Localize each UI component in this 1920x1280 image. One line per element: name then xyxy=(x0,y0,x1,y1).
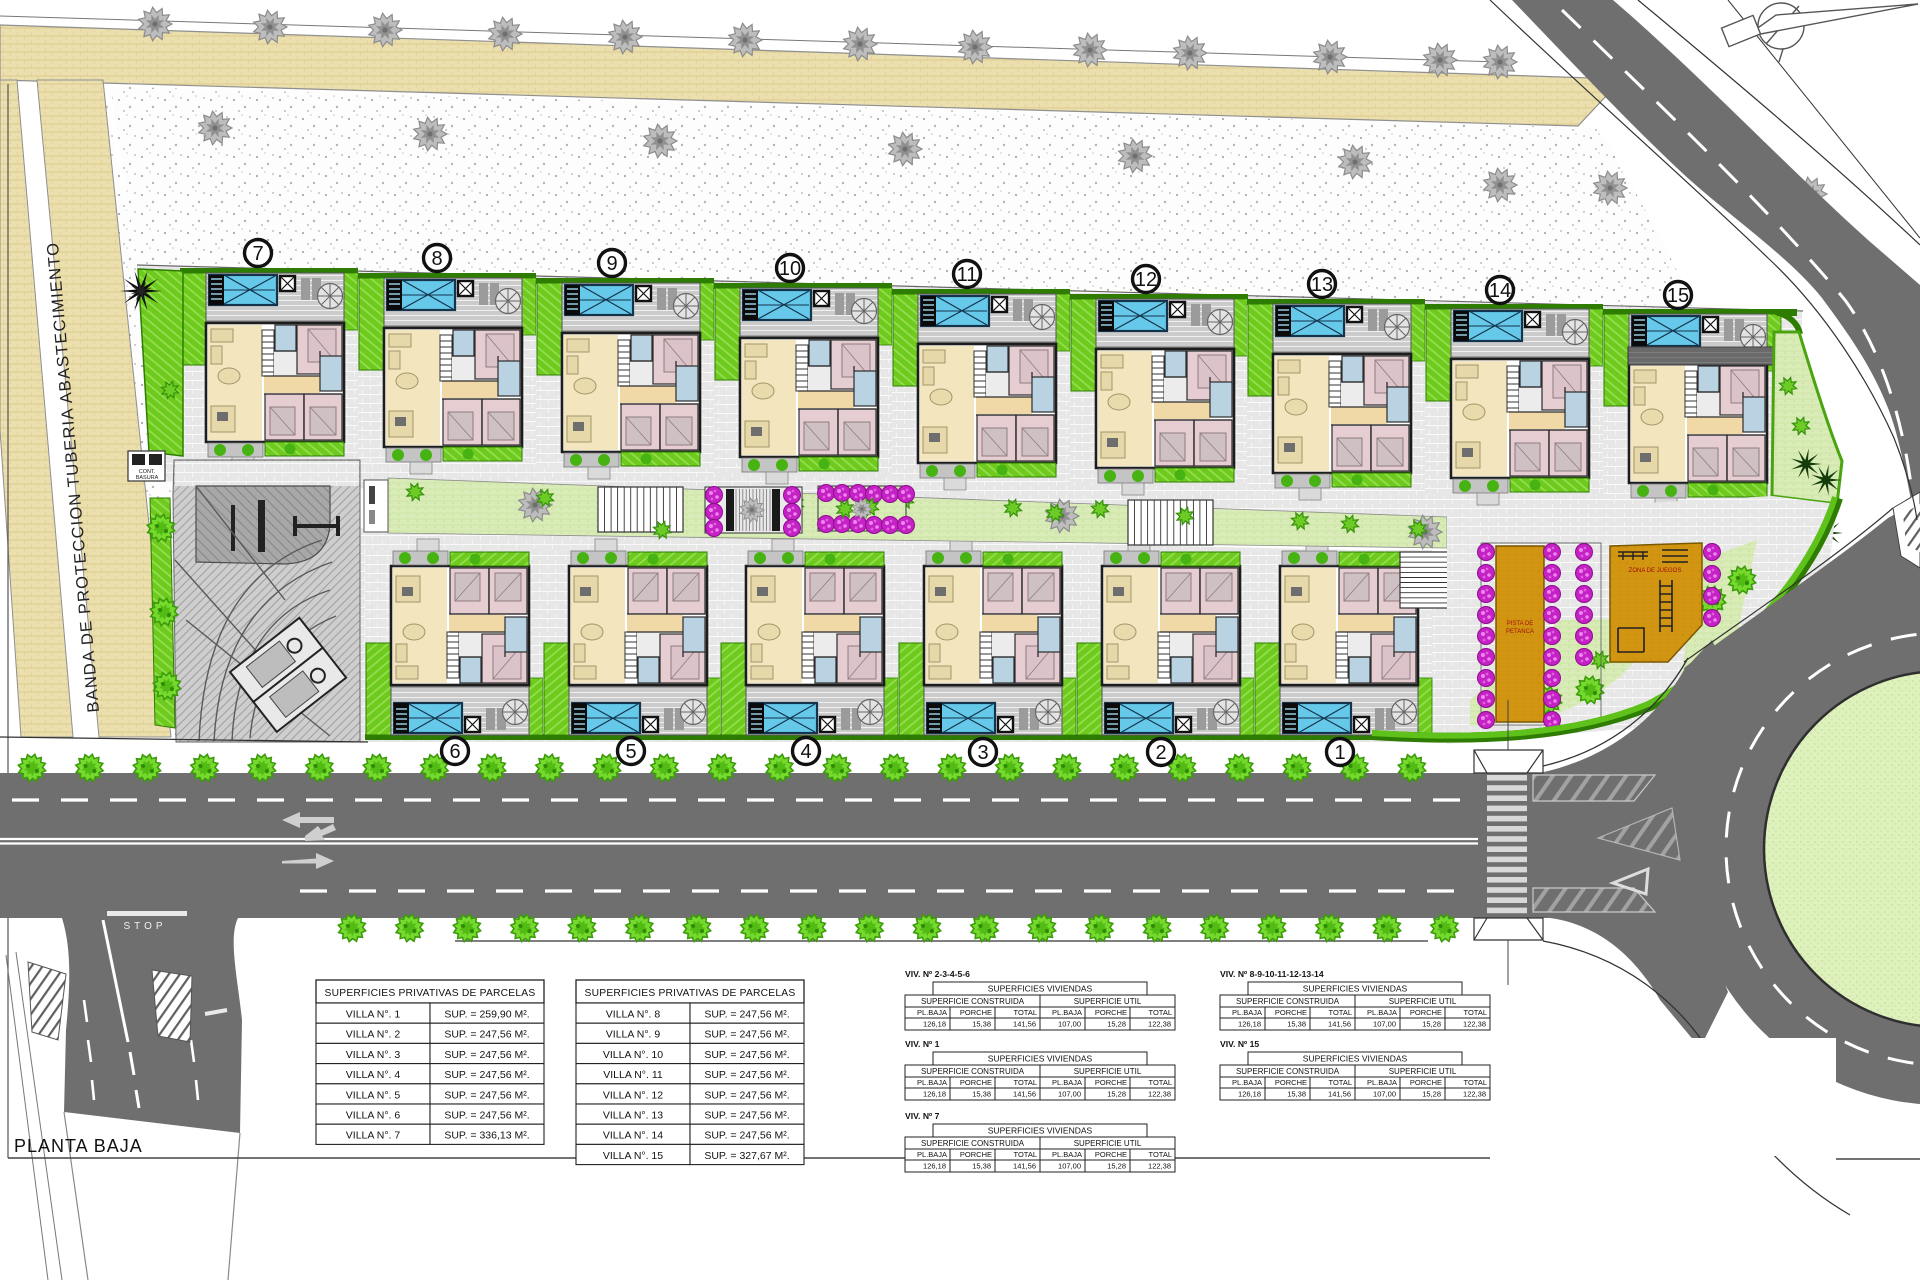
svg-text:141,56: 141,56 xyxy=(1328,1090,1351,1099)
svg-text:SUPERFICIES VIVIENDAS: SUPERFICIES VIVIENDAS xyxy=(988,984,1093,994)
svg-text:SUP. = 247,56 M².: SUP. = 247,56 M². xyxy=(704,1049,789,1061)
svg-text:SUP. = 247,56 M².: SUP. = 247,56 M². xyxy=(704,1089,789,1101)
svg-text:SUPERFICIE CONSTRUIDA: SUPERFICIE CONSTRUIDA xyxy=(1236,1067,1340,1076)
svg-text:15,38: 15,38 xyxy=(1287,1020,1306,1029)
svg-text:SUP. = 247,56 M².: SUP. = 247,56 M². xyxy=(704,1069,789,1081)
svg-text:122,38: 122,38 xyxy=(1148,1162,1171,1171)
svg-text:SUPERFICIE UTIL: SUPERFICIE UTIL xyxy=(1074,1139,1142,1148)
svg-text:SUP. = 247,56 M².: SUP. = 247,56 M². xyxy=(444,1029,529,1041)
svg-text:PORCHE: PORCHE xyxy=(1095,1150,1127,1159)
svg-text:5: 5 xyxy=(625,741,636,763)
svg-text:107,00: 107,00 xyxy=(1373,1020,1396,1029)
svg-text:VIV. Nº 1: VIV. Nº 1 xyxy=(905,1039,940,1049)
svg-text:122,38: 122,38 xyxy=(1463,1090,1486,1099)
svg-text:TOTAL: TOTAL xyxy=(1149,1008,1172,1017)
svg-text:10: 10 xyxy=(779,258,801,280)
svg-text:PL.BAJA: PL.BAJA xyxy=(1052,1150,1082,1159)
svg-text:PORCHE: PORCHE xyxy=(1275,1008,1307,1017)
svg-text:141,56: 141,56 xyxy=(1013,1162,1036,1171)
svg-text:VILLA N°. 5: VILLA N°. 5 xyxy=(346,1089,401,1101)
svg-text:SUPERFICIES PRIVATIVAS DE PARC: SUPERFICIES PRIVATIVAS DE PARCELAS xyxy=(325,988,536,999)
svg-text:PORCHE: PORCHE xyxy=(1095,1008,1127,1017)
svg-text:VILLA N°. 10: VILLA N°. 10 xyxy=(603,1049,663,1061)
svg-text:TOTAL: TOTAL xyxy=(1149,1150,1172,1159)
svg-text:VILLA N°. 14: VILLA N°. 14 xyxy=(603,1130,663,1142)
svg-text:6: 6 xyxy=(449,741,460,763)
svg-text:STOP: STOP xyxy=(123,921,166,932)
svg-text:VILLA N°. 7: VILLA N°. 7 xyxy=(346,1130,401,1142)
svg-text:SUPERFICIES VIVIENDAS: SUPERFICIES VIVIENDAS xyxy=(988,1126,1093,1136)
svg-text:107,00: 107,00 xyxy=(1058,1162,1081,1171)
svg-text:SUP. = 327,67 M².: SUP. = 327,67 M². xyxy=(704,1150,789,1162)
svg-text:VILLA N°. 1: VILLA N°. 1 xyxy=(346,1009,401,1021)
svg-text:8: 8 xyxy=(431,248,442,270)
svg-text:SUPERFICIES VIVIENDAS: SUPERFICIES VIVIENDAS xyxy=(1303,1054,1408,1064)
svg-text:14: 14 xyxy=(1489,280,1511,302)
svg-text:SUPERFICIE CONSTRUIDA: SUPERFICIE CONSTRUIDA xyxy=(1236,997,1340,1006)
svg-text:VIV. Nº 7: VIV. Nº 7 xyxy=(905,1111,940,1121)
svg-text:PL.BAJA: PL.BAJA xyxy=(1052,1078,1082,1087)
svg-text:TOTAL: TOTAL xyxy=(1149,1078,1172,1087)
svg-text:126,18: 126,18 xyxy=(923,1162,946,1171)
svg-text:15,38: 15,38 xyxy=(972,1090,991,1099)
svg-text:SUP. = 247,56 M².: SUP. = 247,56 M². xyxy=(444,1089,529,1101)
svg-text:PL.BAJA: PL.BAJA xyxy=(1367,1008,1397,1017)
svg-text:PL.BAJA: PL.BAJA xyxy=(1232,1078,1262,1087)
svg-text:TOTAL: TOTAL xyxy=(1014,1008,1037,1017)
svg-text:122,38: 122,38 xyxy=(1148,1020,1171,1029)
svg-text:SUP. = 247,56 M².: SUP. = 247,56 M². xyxy=(704,1009,789,1021)
svg-text:TOTAL: TOTAL xyxy=(1329,1008,1352,1017)
svg-text:15,38: 15,38 xyxy=(972,1020,991,1029)
svg-text:SUP. = 247,56 M².: SUP. = 247,56 M². xyxy=(444,1049,529,1061)
svg-text:SUPERFICIE CONSTRUIDA: SUPERFICIE CONSTRUIDA xyxy=(921,997,1025,1006)
svg-text:VIV. Nº 15: VIV. Nº 15 xyxy=(1220,1039,1259,1049)
svg-text:SUPERFICIES PRIVATIVAS DE PARC: SUPERFICIES PRIVATIVAS DE PARCELAS xyxy=(585,988,796,999)
svg-text:SUPERFICIE CONSTRUIDA: SUPERFICIE CONSTRUIDA xyxy=(921,1067,1025,1076)
svg-text:SUP. = 336,13 M².: SUP. = 336,13 M². xyxy=(444,1130,529,1142)
svg-text:ZONA DE JUEGOS: ZONA DE JUEGOS xyxy=(1629,568,1682,574)
svg-text:SUPERFICIES VIVIENDAS: SUPERFICIES VIVIENDAS xyxy=(1303,984,1408,994)
svg-text:SUPERFICIE UTIL: SUPERFICIE UTIL xyxy=(1389,1067,1457,1076)
svg-text:PORCHE: PORCHE xyxy=(1275,1078,1307,1087)
svg-text:VILLA N°. 12: VILLA N°. 12 xyxy=(603,1089,663,1101)
svg-text:9: 9 xyxy=(606,253,617,275)
svg-text:SUP. = 259,90 M².: SUP. = 259,90 M². xyxy=(444,1009,529,1021)
svg-text:VIV. Nº 8-9-10-11-12-13-14: VIV. Nº 8-9-10-11-12-13-14 xyxy=(1220,969,1324,979)
svg-text:PLANTA BAJA: PLANTA BAJA xyxy=(14,1136,143,1156)
svg-text:PL.BAJA: PL.BAJA xyxy=(1232,1008,1262,1017)
svg-text:SUPERFICIE UTIL: SUPERFICIE UTIL xyxy=(1074,1067,1142,1076)
svg-text:15: 15 xyxy=(1667,285,1689,307)
svg-text:SUP. = 247,56 M².: SUP. = 247,56 M². xyxy=(704,1029,789,1041)
svg-text:15,28: 15,28 xyxy=(1107,1020,1126,1029)
svg-text:SUPERFICIES VIVIENDAS: SUPERFICIES VIVIENDAS xyxy=(988,1054,1093,1064)
svg-text:13: 13 xyxy=(1311,274,1333,296)
svg-text:VILLA N°. 6: VILLA N°. 6 xyxy=(346,1110,401,1122)
svg-text:15,28: 15,28 xyxy=(1422,1090,1441,1099)
svg-text:141,56: 141,56 xyxy=(1013,1020,1036,1029)
svg-text:VILLA N°. 13: VILLA N°. 13 xyxy=(603,1110,663,1122)
svg-text:3: 3 xyxy=(977,742,988,764)
svg-text:126,18: 126,18 xyxy=(1238,1090,1261,1099)
svg-text:PORCHE: PORCHE xyxy=(1095,1078,1127,1087)
svg-text:PL.BAJA: PL.BAJA xyxy=(917,1078,947,1087)
svg-text:SUPERFICIE UTIL: SUPERFICIE UTIL xyxy=(1389,997,1457,1006)
svg-text:1: 1 xyxy=(1334,742,1345,764)
svg-text:11: 11 xyxy=(957,264,978,286)
svg-text:107,00: 107,00 xyxy=(1058,1020,1081,1029)
svg-text:PETANCA: PETANCA xyxy=(1506,629,1534,635)
svg-text:BASURA: BASURA xyxy=(136,475,159,481)
svg-text:VILLA N°. 15: VILLA N°. 15 xyxy=(603,1150,663,1162)
svg-text:15,28: 15,28 xyxy=(1107,1162,1126,1171)
svg-text:PL.BAJA: PL.BAJA xyxy=(1052,1008,1082,1017)
svg-text:VILLA N°. 9: VILLA N°. 9 xyxy=(606,1029,661,1041)
svg-text:VIV. Nº 2-3-4-5-6: VIV. Nº 2-3-4-5-6 xyxy=(905,969,970,979)
svg-text:107,00: 107,00 xyxy=(1373,1090,1396,1099)
svg-text:PORCHE: PORCHE xyxy=(960,1078,992,1087)
svg-text:TOTAL: TOTAL xyxy=(1464,1078,1487,1087)
svg-text:SUP. = 247,56 M².: SUP. = 247,56 M². xyxy=(444,1110,529,1122)
svg-text:SUP. = 247,56 M².: SUP. = 247,56 M². xyxy=(704,1130,789,1142)
svg-text:107,00: 107,00 xyxy=(1058,1090,1081,1099)
svg-text:VILLA N°. 11: VILLA N°. 11 xyxy=(603,1069,663,1081)
svg-text:VILLA N°. 2: VILLA N°. 2 xyxy=(346,1029,401,1041)
svg-text:PORCHE: PORCHE xyxy=(1410,1078,1442,1087)
svg-text:PISTA DE: PISTA DE xyxy=(1507,621,1534,627)
svg-text:TOTAL: TOTAL xyxy=(1329,1078,1352,1087)
svg-text:TOTAL: TOTAL xyxy=(1464,1008,1487,1017)
svg-text:15,28: 15,28 xyxy=(1422,1020,1441,1029)
svg-text:4: 4 xyxy=(800,741,811,763)
svg-text:126,18: 126,18 xyxy=(1238,1020,1261,1029)
svg-text:122,38: 122,38 xyxy=(1148,1090,1171,1099)
svg-text:15,38: 15,38 xyxy=(1287,1090,1306,1099)
svg-text:VILLA N°. 4: VILLA N°. 4 xyxy=(346,1069,401,1081)
svg-text:126,18: 126,18 xyxy=(923,1020,946,1029)
svg-text:7: 7 xyxy=(252,243,263,265)
svg-text:SUP. = 247,56 M².: SUP. = 247,56 M². xyxy=(444,1069,529,1081)
svg-text:TOTAL: TOTAL xyxy=(1014,1078,1037,1087)
svg-text:SUP. = 247,56 M².: SUP. = 247,56 M². xyxy=(704,1110,789,1122)
svg-text:PORCHE: PORCHE xyxy=(960,1008,992,1017)
svg-text:141,56: 141,56 xyxy=(1328,1020,1351,1029)
svg-text:122,38: 122,38 xyxy=(1463,1020,1486,1029)
svg-text:PORCHE: PORCHE xyxy=(1410,1008,1442,1017)
svg-text:141,56: 141,56 xyxy=(1013,1090,1036,1099)
svg-text:126,18: 126,18 xyxy=(923,1090,946,1099)
svg-text:15,38: 15,38 xyxy=(972,1162,991,1171)
svg-text:SUPERFICIE UTIL: SUPERFICIE UTIL xyxy=(1074,997,1142,1006)
svg-text:PL.BAJA: PL.BAJA xyxy=(917,1150,947,1159)
svg-text:VILLA N°. 3: VILLA N°. 3 xyxy=(346,1049,401,1061)
svg-text:2: 2 xyxy=(1155,742,1166,764)
svg-text:TOTAL: TOTAL xyxy=(1014,1150,1037,1159)
svg-text:PL.BAJA: PL.BAJA xyxy=(917,1008,947,1017)
svg-text:15,28: 15,28 xyxy=(1107,1090,1126,1099)
svg-text:PORCHE: PORCHE xyxy=(960,1150,992,1159)
svg-text:PL.BAJA: PL.BAJA xyxy=(1367,1078,1397,1087)
svg-text:VILLA N°. 8: VILLA N°. 8 xyxy=(606,1009,661,1021)
svg-text:SUPERFICIE CONSTRUIDA: SUPERFICIE CONSTRUIDA xyxy=(921,1139,1025,1148)
svg-text:12: 12 xyxy=(1135,269,1157,291)
